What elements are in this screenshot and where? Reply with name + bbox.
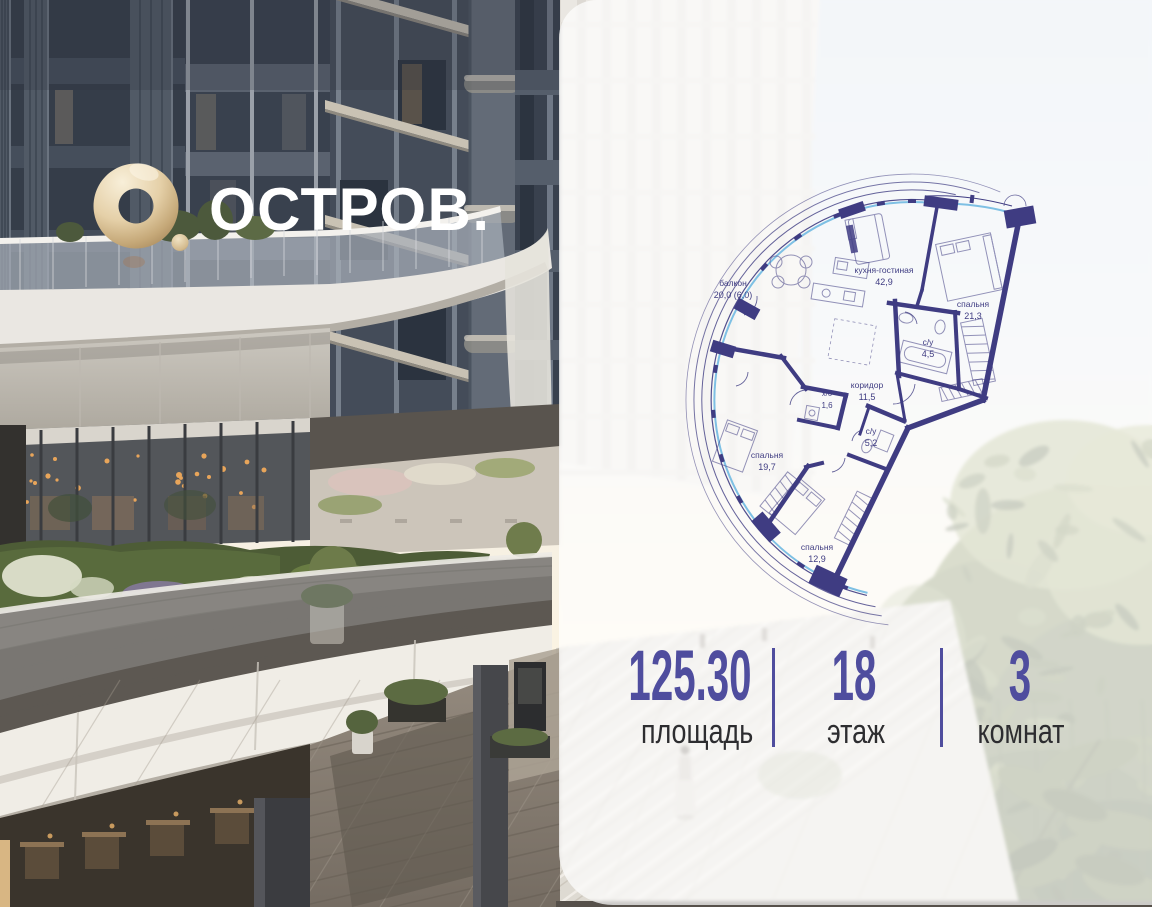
svg-text:19,7: 19,7: [758, 462, 776, 472]
svg-text:кухня-гостиная: кухня-гостиная: [855, 265, 914, 275]
svg-text:с/у: с/у: [923, 337, 935, 347]
svg-text:коридор: коридор: [851, 380, 884, 390]
svg-text:спальня: спальня: [801, 542, 834, 552]
svg-text:11,5: 11,5: [859, 392, 876, 402]
svg-text:4,5: 4,5: [922, 349, 935, 359]
svg-text:х/б: х/б: [822, 389, 832, 398]
svg-text:спальня: спальня: [957, 299, 990, 309]
svg-text:спальня: спальня: [751, 450, 784, 460]
svg-text:21,3: 21,3: [964, 311, 982, 321]
svg-text:1,6: 1,6: [821, 401, 833, 410]
svg-text:20,0 (6,0): 20,0 (6,0): [714, 290, 753, 300]
svg-text:балкон: балкон: [719, 278, 747, 288]
svg-text:5,2: 5,2: [865, 438, 878, 448]
svg-text:42,9: 42,9: [875, 277, 893, 287]
svg-text:12,9: 12,9: [808, 554, 826, 564]
svg-text:с/у: с/у: [866, 426, 878, 436]
